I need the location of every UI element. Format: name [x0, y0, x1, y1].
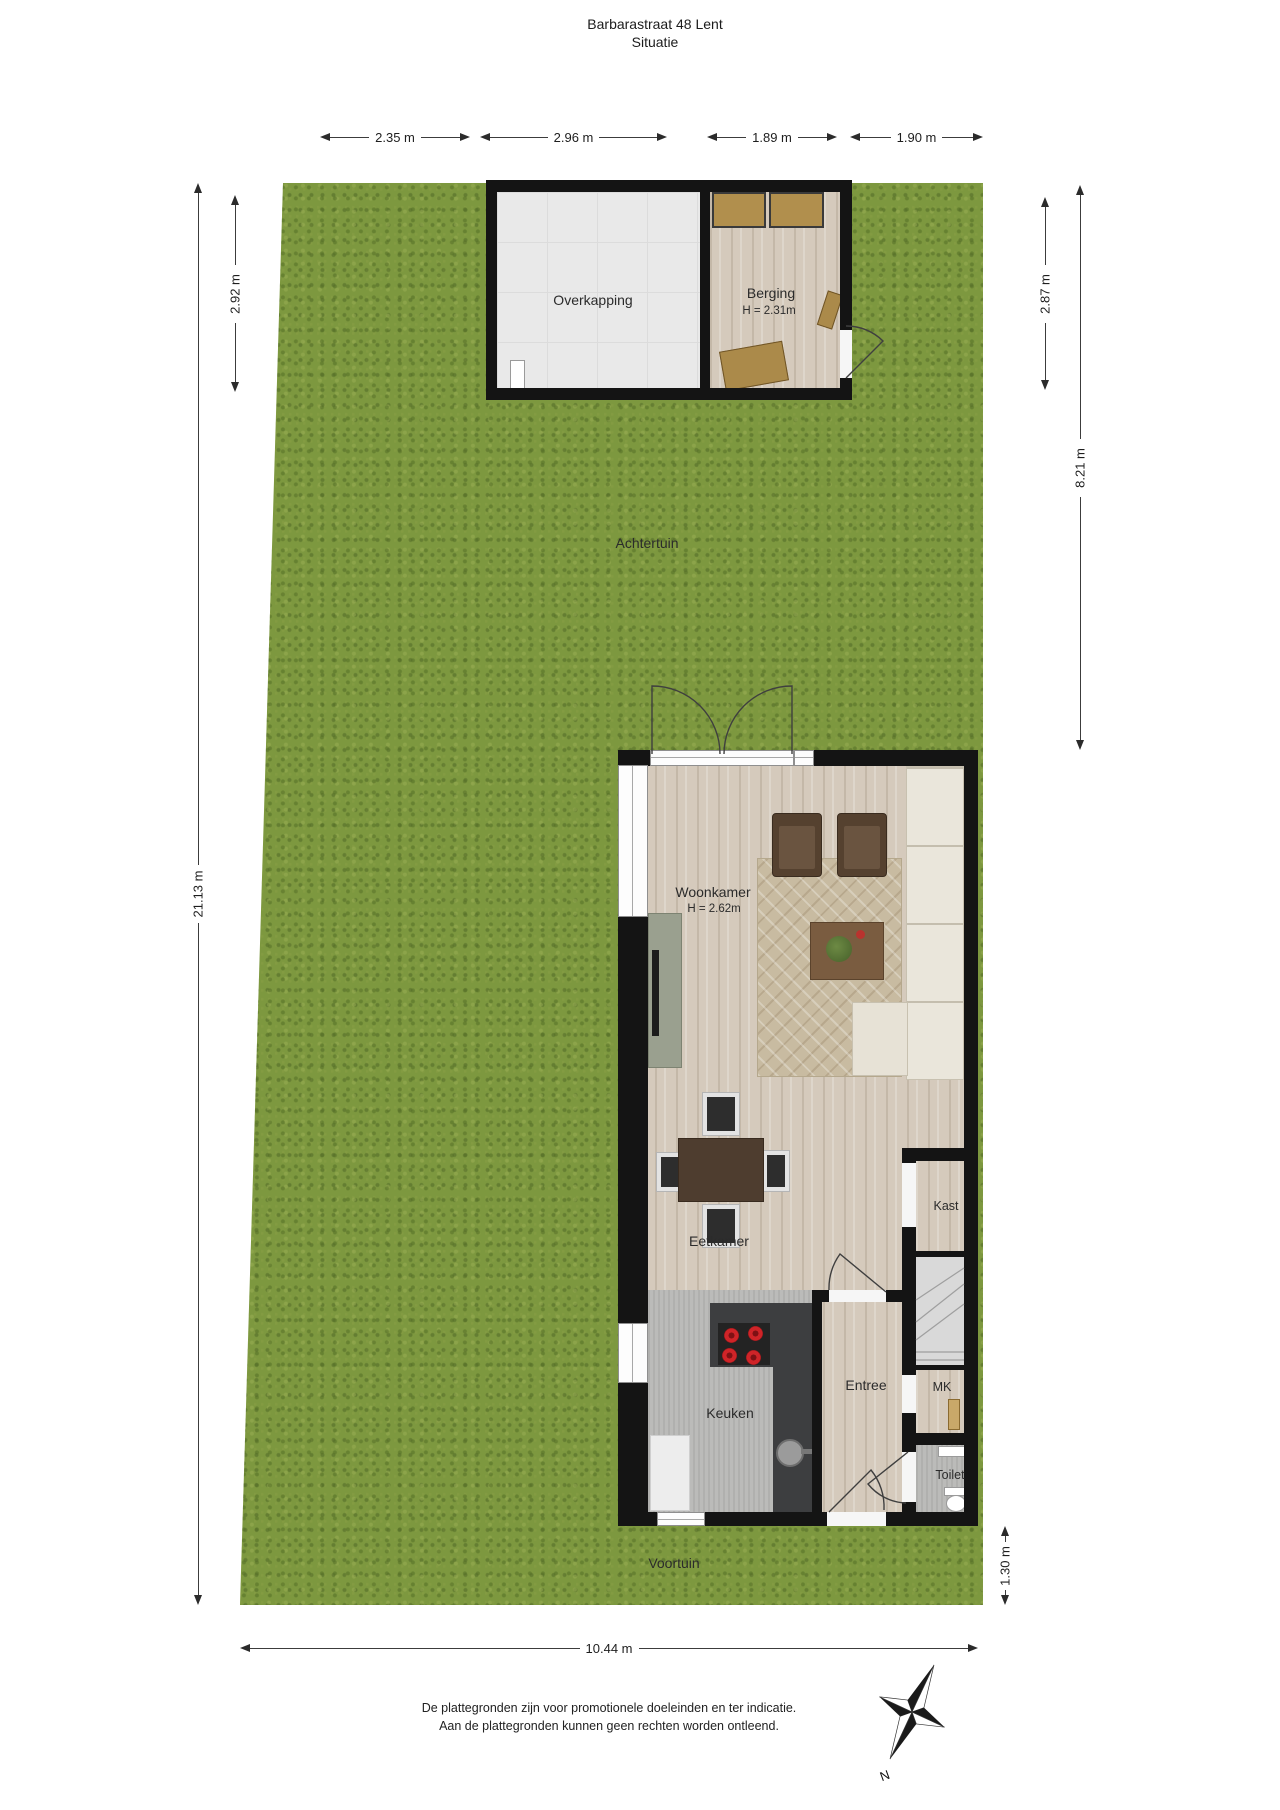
dim-top-garden-left: 2.35 m — [320, 129, 470, 145]
dim-label: 2.87 m — [1038, 265, 1052, 323]
toilet-door-swing — [868, 1452, 908, 1503]
stair-tread — [916, 1268, 964, 1300]
dim-label: 21.13 m — [191, 865, 205, 923]
stair-tread — [916, 1304, 964, 1340]
dim-line — [717, 137, 746, 138]
dim-label: 8.21 m — [1073, 439, 1087, 497]
dim-arrow-down-icon — [1001, 1595, 1009, 1605]
dim-arrow-left-icon — [240, 1644, 250, 1652]
room-label-toilet: Toilet — [935, 1468, 964, 1482]
dim-line — [198, 193, 199, 865]
room-label-berging: Berging — [747, 285, 795, 301]
plan-title-address: Barbarastraat 48 Lent — [587, 16, 722, 34]
disclaimer: De plattegronden zijn voor promotionele … — [422, 1700, 797, 1735]
room-label-voortuin: Voortuin — [648, 1555, 699, 1571]
front-door-swing — [829, 1470, 884, 1512]
plan-title-subtitle: Situatie — [587, 34, 722, 52]
dim-arrow-left-icon — [707, 133, 717, 141]
disclaimer-line-1: De plattegronden zijn voor promotionele … — [422, 1700, 797, 1718]
room-label-eetkamer: Eetkamer — [689, 1233, 749, 1249]
dim-line — [860, 137, 891, 138]
dim-line — [330, 137, 369, 138]
room-label-keuken: Keuken — [706, 1405, 753, 1421]
dim-arrow-up-icon — [231, 195, 239, 205]
dim-arrow-down-icon — [231, 382, 239, 392]
stair-tread — [916, 1284, 964, 1322]
plan-title: Barbarastraat 48 Lent Situatie — [587, 16, 722, 51]
dim-line — [1045, 323, 1046, 381]
room-label-overkapping: Overkapping — [553, 292, 632, 308]
dim-left-total: 21.13 m — [191, 183, 205, 1605]
dim-arrow-up-icon — [1001, 1526, 1009, 1536]
french-door-right-swing — [724, 686, 792, 754]
dim-label: 1.89 m — [746, 130, 798, 145]
dim-label: 2.96 m — [548, 130, 600, 145]
dim-right-berging-depth: 2.87 m — [1038, 197, 1052, 390]
dim-top-overkapping: 2.96 m — [480, 129, 667, 145]
dim-arrow-down-icon — [1076, 740, 1084, 750]
dim-arrow-up-icon — [1041, 197, 1049, 207]
berging-door-swing — [846, 326, 883, 378]
dim-arrow-down-icon — [194, 1595, 202, 1605]
floorplan-canvas: Barbarastraat 48 Lent Situatie 2.35 m 2.… — [0, 0, 1280, 1810]
disclaimer-line-2: Aan de plattegronden kunnen geen rechten… — [422, 1718, 797, 1736]
dim-line — [1045, 207, 1046, 265]
dim-top-garden-right: 1.90 m — [850, 129, 983, 145]
dim-arrow-left-icon — [850, 133, 860, 141]
dim-right-voortuin-depth: 1.30 m — [998, 1526, 1012, 1605]
dim-line — [599, 137, 657, 138]
dim-arrow-right-icon — [827, 133, 837, 141]
dim-arrow-down-icon — [1041, 380, 1049, 390]
dim-label: 10.44 m — [580, 1641, 639, 1656]
dim-right-garden-depth: 8.21 m — [1073, 185, 1087, 750]
dim-line — [1080, 195, 1081, 439]
room-label-entree: Entree — [845, 1377, 886, 1393]
dim-line — [421, 137, 460, 138]
room-label-kast: Kast — [933, 1199, 958, 1213]
room-label-woonkamer: Woonkamer — [675, 884, 750, 900]
dim-line — [1080, 497, 1081, 741]
dim-label: 1.30 m — [998, 1542, 1012, 1590]
room-label-achtertuin: Achtertuin — [615, 535, 678, 551]
dim-label: 2.92 m — [228, 265, 242, 323]
dim-line — [250, 1648, 580, 1649]
dim-arrow-up-icon — [194, 183, 202, 193]
dim-arrow-right-icon — [460, 133, 470, 141]
room-label-mk: MK — [933, 1380, 952, 1394]
room-label-berging-height: H = 2.31m — [742, 305, 795, 317]
french-door-left-swing — [652, 686, 720, 754]
room-label-woonkamer-height: H = 2.62m — [687, 903, 740, 915]
dim-line — [235, 205, 236, 265]
dim-line — [198, 923, 199, 1595]
dim-arrow-left-icon — [480, 133, 490, 141]
dim-arrow-left-icon — [320, 133, 330, 141]
entree-door-swing — [829, 1254, 886, 1292]
dim-line — [798, 137, 827, 138]
dim-top-berging: 1.89 m — [707, 129, 837, 145]
dim-left-overkapping-depth: 2.92 m — [228, 195, 242, 392]
dim-label: 2.35 m — [369, 130, 421, 145]
dim-label: 1.90 m — [891, 130, 943, 145]
dim-arrow-right-icon — [657, 133, 667, 141]
dim-line — [942, 137, 973, 138]
dim-line — [490, 137, 548, 138]
dim-arrow-up-icon — [1076, 185, 1084, 195]
dim-line — [235, 323, 236, 383]
dim-arrow-right-icon — [973, 133, 983, 141]
compass-icon — [852, 1642, 972, 1782]
